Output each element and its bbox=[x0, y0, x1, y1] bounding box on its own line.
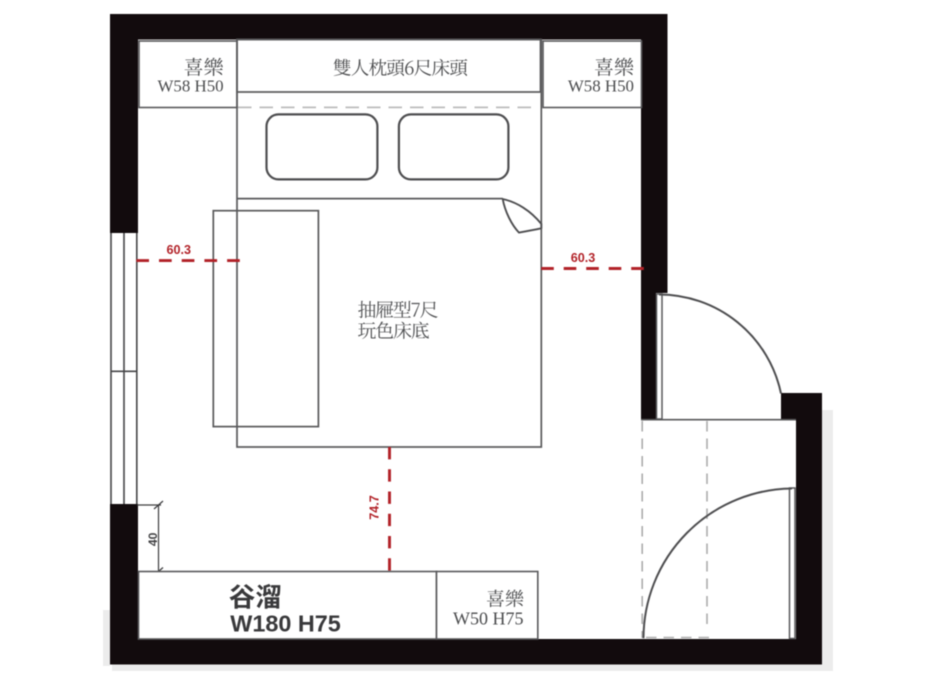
svg-text:W58 H50: W58 H50 bbox=[157, 77, 223, 96]
svg-text:W180 H75: W180 H75 bbox=[230, 610, 341, 636]
svg-text:60.3: 60.3 bbox=[166, 243, 191, 257]
svg-text:40: 40 bbox=[146, 532, 160, 546]
svg-text:W50 H75: W50 H75 bbox=[453, 609, 524, 629]
svg-text:W58 H50: W58 H50 bbox=[568, 77, 634, 96]
svg-text:60.3: 60.3 bbox=[571, 251, 596, 265]
svg-text:74.7: 74.7 bbox=[367, 495, 381, 520]
